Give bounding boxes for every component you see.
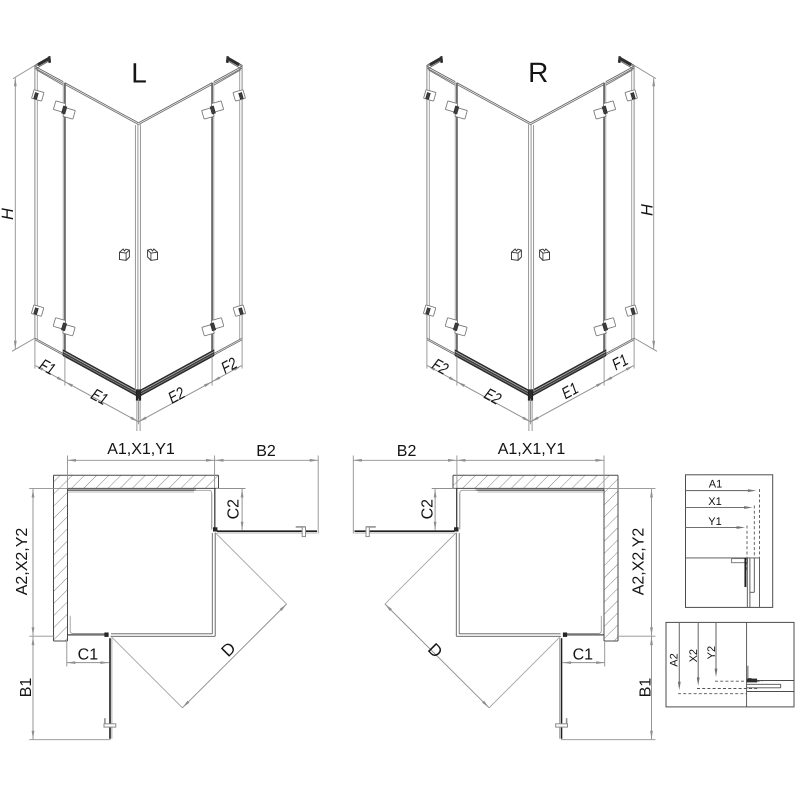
svg-text:H: H xyxy=(639,204,657,216)
svg-text:L: L xyxy=(131,57,147,88)
svg-text:B2: B2 xyxy=(397,443,417,460)
svg-text:H: H xyxy=(0,208,17,220)
svg-text:X1: X1 xyxy=(708,496,721,508)
svg-text:C1: C1 xyxy=(573,646,594,663)
svg-text:C2: C2 xyxy=(225,499,242,520)
svg-text:C1: C1 xyxy=(78,646,99,663)
svg-text:A2,X2,Y2: A2,X2,Y2 xyxy=(631,528,648,596)
svg-text:A2: A2 xyxy=(669,653,681,666)
svg-text:R: R xyxy=(528,57,548,88)
svg-text:C2: C2 xyxy=(420,499,437,520)
svg-text:A1,X1,Y1: A1,X1,Y1 xyxy=(107,441,175,458)
svg-text:Y1: Y1 xyxy=(708,516,721,528)
svg-text:X2: X2 xyxy=(688,649,700,662)
svg-text:B2: B2 xyxy=(256,443,276,460)
svg-text:A1,X1,Y1: A1,X1,Y1 xyxy=(498,441,566,458)
svg-text:B1: B1 xyxy=(18,678,35,698)
svg-text:A1: A1 xyxy=(709,479,722,491)
svg-text:A2,X2,Y2: A2,X2,Y2 xyxy=(14,528,31,596)
svg-text:Y2: Y2 xyxy=(706,646,718,659)
svg-text:B1: B1 xyxy=(637,678,654,698)
